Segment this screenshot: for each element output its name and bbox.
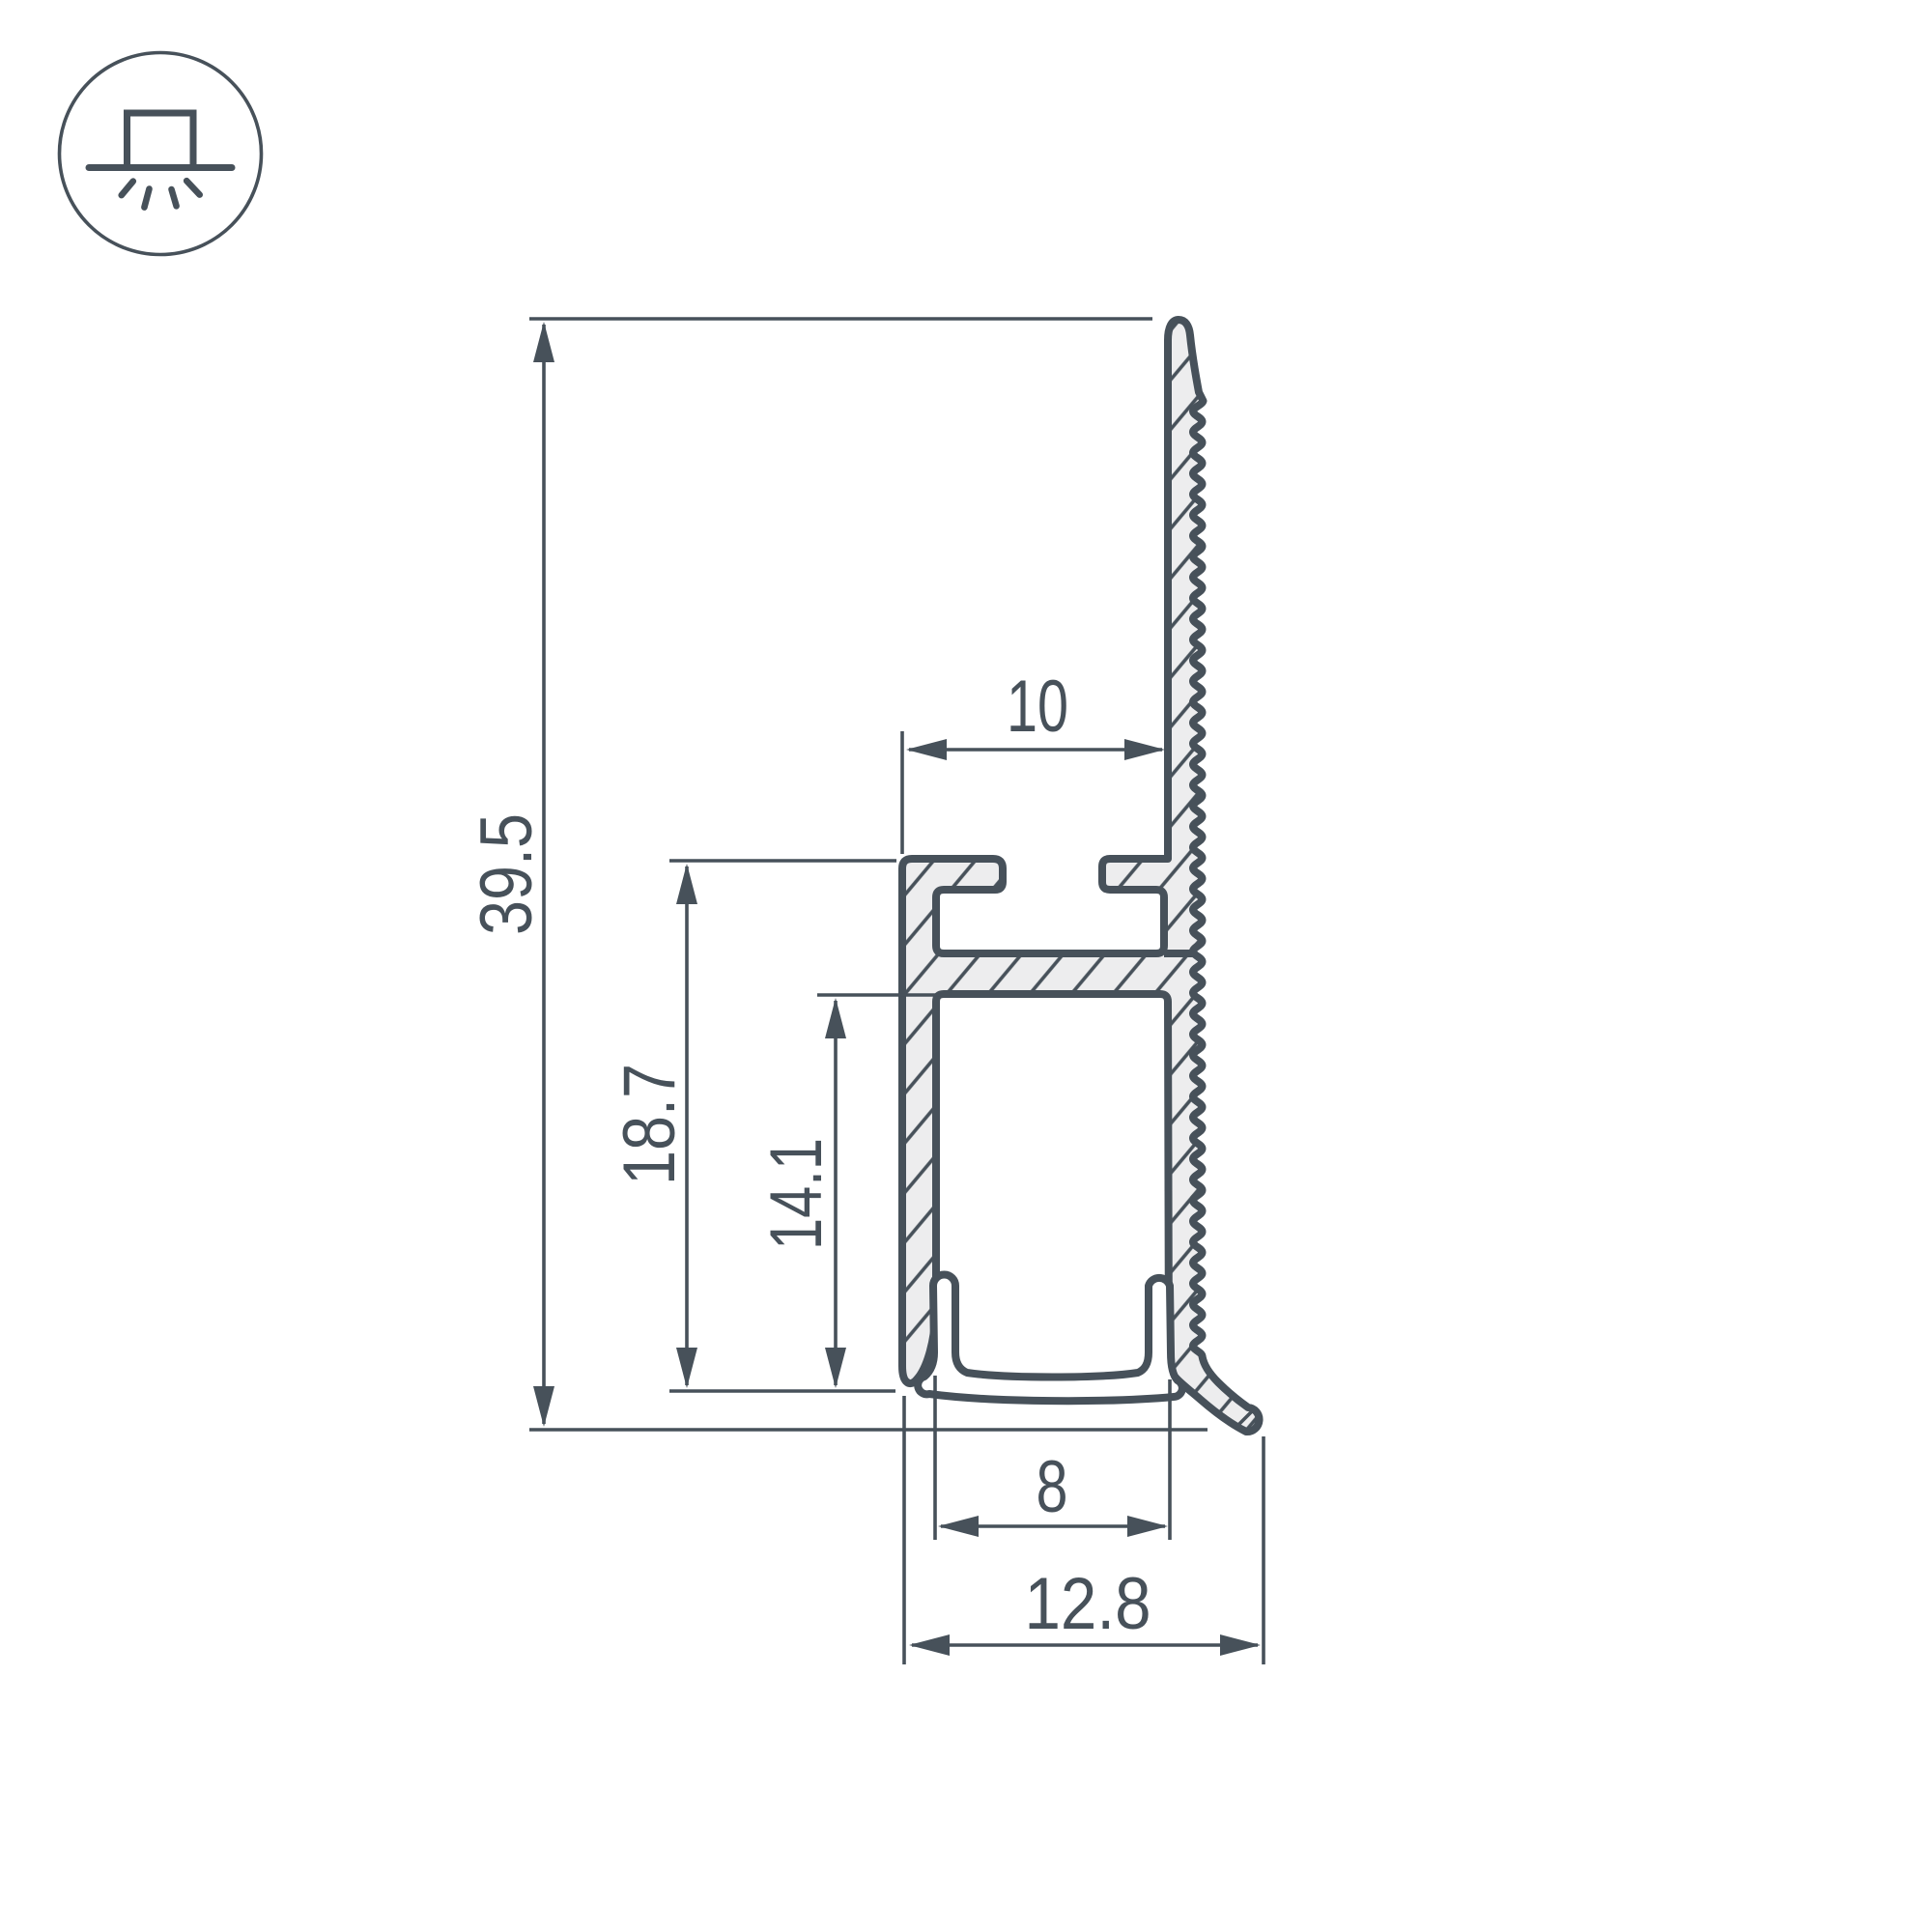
svg-text:14.1: 14.1: [755, 1138, 838, 1250]
svg-text:39.5: 39.5: [466, 813, 548, 935]
svg-text:12.8: 12.8: [1025, 1563, 1151, 1645]
svg-text:18.7: 18.7: [609, 1064, 691, 1185]
svg-text:8: 8: [1037, 1446, 1068, 1528]
svg-text:10: 10: [1007, 666, 1068, 748]
